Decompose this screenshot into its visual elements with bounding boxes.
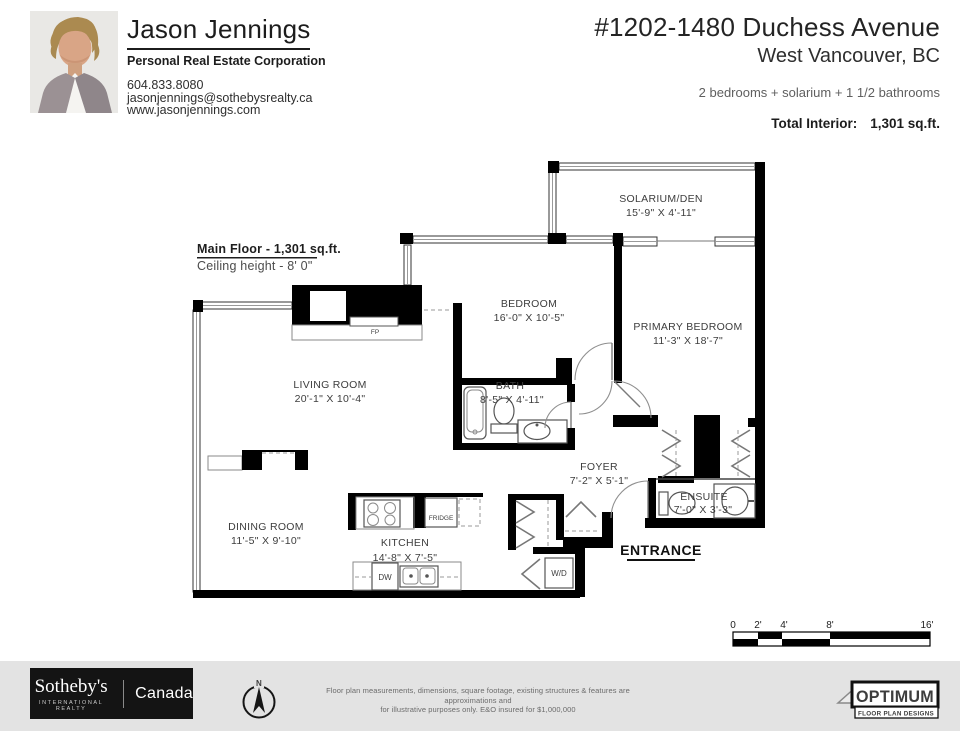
- floor-label: Main Floor - 1,301 sq.ft.: [197, 242, 341, 256]
- optimum-name: OPTIMUM: [856, 687, 934, 706]
- hall-door-arc: [579, 381, 612, 414]
- floor-plan: Main Floor - 1,301 sq.ft. Ceiling height…: [0, 140, 960, 660]
- room-living: LIVING ROOM: [293, 379, 366, 391]
- agent-website: www.jasonjennings.com: [127, 104, 326, 117]
- dw-label: DW: [378, 573, 392, 582]
- compass-icon: N: [236, 677, 282, 723]
- living-top-window: [196, 302, 292, 309]
- room-solarium: SOLARIUM/DEN: [619, 193, 703, 205]
- disclaimer-line1: Floor plan measurements, dimensions, squ…: [300, 686, 656, 705]
- room-primary-dims: 11'-3" X 18'-7": [653, 335, 723, 347]
- closet-divider: [694, 415, 720, 478]
- sothebys-country: Canada: [135, 685, 193, 703]
- total-value: 1,301 sq.ft.: [870, 116, 940, 131]
- bath-left-wall: [453, 303, 462, 450]
- sothebys-logo: Sotheby's INTERNATIONAL REALTY Canada: [30, 668, 193, 719]
- room-living-dims: 20'-1" X 10'-4": [295, 393, 366, 405]
- fireplace-niche: [310, 291, 346, 321]
- sothebys-brand: Sotheby's: [30, 676, 112, 698]
- room-kitchen-dims: 14'-8" X 7'-5": [373, 552, 438, 564]
- room-foyer: FOYER: [580, 461, 618, 473]
- scale-16: 16': [920, 620, 933, 631]
- disclaimer: Floor plan measurements, dimensions, squ…: [300, 686, 656, 715]
- ensuite-bottom-wall: [645, 518, 765, 528]
- dishwasher: DW: [372, 563, 398, 590]
- optimum-sub: FLOOR PLAN DESIGNS: [858, 711, 934, 718]
- room-ensuite-dims: 7'-0" X 3'-3": [674, 504, 733, 516]
- room-primary: PRIMARY BEDROOM: [633, 321, 742, 333]
- solarium-left-window: [549, 172, 556, 234]
- listing-summary: 2 bedrooms + solarium + 1 1/2 bathrooms: [594, 85, 940, 100]
- solarium-sill-window-left: [566, 236, 613, 243]
- sothebys-sub: INTERNATIONAL REALTY: [30, 700, 112, 712]
- bedroom-top-window: [413, 236, 548, 243]
- hall-closet-bifold: [516, 501, 534, 548]
- floor-plan-sheet: Jason Jennings Personal Real Estate Corp…: [0, 0, 960, 742]
- entrance-label: ENTRANCE: [620, 542, 702, 558]
- listing-address: #1202-1480 Duchess Avenue: [594, 12, 940, 43]
- kitchen-dashed-cabinet: [459, 499, 480, 526]
- scale-4: 4': [780, 620, 788, 631]
- optimum-logo: OPTIMUM FLOOR PLAN DESIGNS: [833, 680, 943, 720]
- compass-needle: [253, 687, 265, 713]
- disclaimer-line2: for illustrative purposes only. E&O insu…: [300, 705, 656, 715]
- room-bath-dims: 8'-5" X 4'-11": [480, 394, 544, 406]
- scale-0: 0: [730, 620, 736, 631]
- entrance-underline: [627, 559, 695, 561]
- closet1-bifold: [662, 430, 680, 477]
- bath-bottom-wall: [462, 443, 567, 450]
- fridge: FRIDGE: [425, 498, 457, 527]
- ceiling-label: Ceiling height - 8' 0": [197, 259, 312, 273]
- room-bedroom: BEDROOM: [501, 298, 557, 310]
- room-bath: BATH: [496, 380, 524, 392]
- agent-title: Personal Real Estate Corporation: [127, 54, 326, 68]
- entry-closet-bifold: [566, 502, 596, 517]
- bedroom-door-arc: [575, 343, 612, 380]
- agent-phone: 604.833.8080: [127, 79, 326, 92]
- stove: [364, 500, 400, 527]
- wd-closet-door: [522, 559, 540, 589]
- bath-sink: [518, 420, 567, 443]
- room-dining-dims: 11'-5" X 9'-10": [231, 535, 301, 547]
- room-bedroom-dims: 16'-0" X 10'-5": [494, 312, 565, 324]
- fridge-label: FRIDGE: [429, 515, 454, 522]
- agent-block: Jason Jennings Personal Real Estate Corp…: [127, 14, 326, 117]
- wd-label: W/D: [551, 569, 567, 578]
- agent-name: Jason Jennings: [127, 14, 310, 50]
- closet2-bifold: [732, 430, 750, 477]
- footer: Sotheby's INTERNATIONAL REALTY Canada N …: [0, 661, 960, 731]
- left-wall-window: [193, 310, 200, 592]
- bedroom-left-window: [404, 245, 411, 285]
- scale-bar: 0 2' 4' 8' 16': [730, 620, 933, 646]
- room-solarium-dims: 15'-9" X 4'-11": [626, 207, 696, 219]
- room-kitchen: KITCHEN: [381, 537, 429, 549]
- listing-city: West Vancouver, BC: [594, 45, 940, 68]
- compass-n: N: [256, 679, 262, 688]
- fireplace-label: FP: [371, 329, 379, 336]
- total-interior: Total Interior:1,301 sq.ft.: [594, 116, 940, 131]
- room-foyer-dims: 7'-2" X 5'-1": [570, 475, 629, 487]
- room-dining: DINING ROOM: [228, 521, 304, 533]
- scale-2: 2': [754, 620, 762, 631]
- dining-buffet: [208, 450, 308, 470]
- header: Jason Jennings Personal Real Estate Corp…: [0, 0, 960, 140]
- room-ensuite: ENSUITE: [680, 491, 728, 503]
- solarium-sill-window-mid: [623, 237, 657, 246]
- right-outer-wall: [755, 162, 765, 528]
- total-label: Total Interior:: [771, 116, 857, 131]
- hall-closet-wall: [508, 494, 516, 550]
- solarium-sill-window-right: [715, 237, 755, 246]
- listing-block: #1202-1480 Duchess Avenue West Vancouver…: [594, 12, 940, 131]
- bedroom-divider-wall: [614, 244, 622, 383]
- bottom-wall: [193, 590, 580, 598]
- wd-right-wall: [575, 547, 585, 597]
- kitchen-sink: [400, 566, 438, 587]
- sothebys-divider: [123, 680, 124, 708]
- solarium-top-window: [559, 163, 755, 170]
- agent-photo: [30, 11, 118, 113]
- washer-dryer: W/D: [545, 558, 573, 588]
- scale-8: 8': [826, 620, 834, 631]
